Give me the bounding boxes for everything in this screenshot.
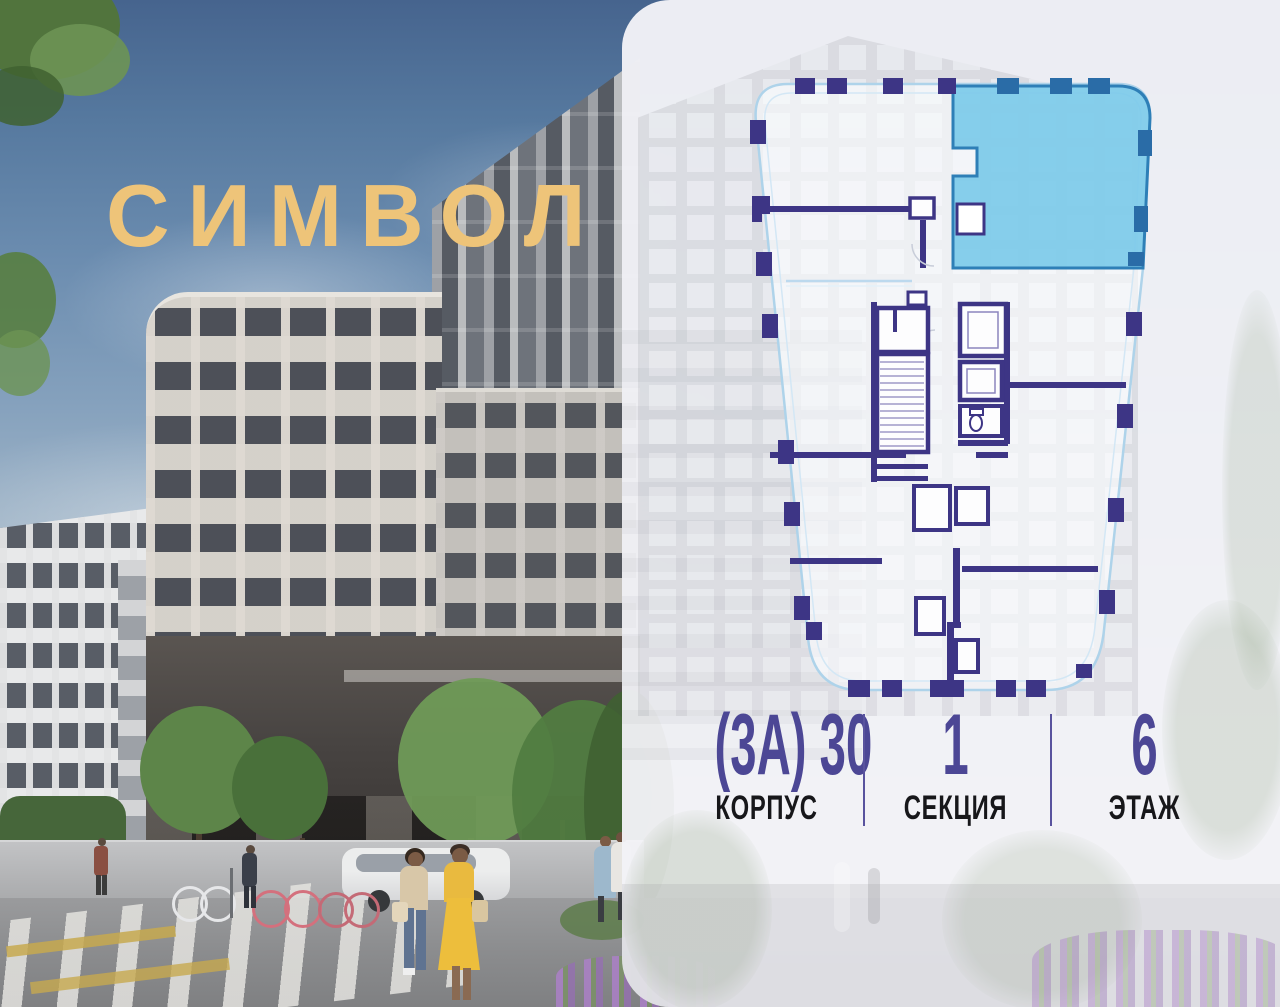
ghost-pedestrian	[834, 862, 850, 932]
bicycle-wheel	[284, 890, 322, 928]
brand-logo: СИМВОЛ	[106, 172, 603, 260]
floor-label: ЭТАЖ	[1078, 790, 1210, 827]
section-label: СЕКЦИЯ	[889, 790, 1021, 827]
toilet-icon	[970, 415, 982, 431]
floor-plan	[725, 66, 1167, 712]
section-value: 1	[904, 702, 1008, 788]
bike-rack	[230, 868, 233, 918]
section-info: 1 СЕКЦИЯ	[861, 702, 1050, 827]
apartment-shaft	[957, 204, 984, 234]
bicycle-wheel	[344, 892, 380, 928]
shaft	[956, 488, 988, 524]
floor-info: 6 ЭТАЖ	[1050, 702, 1239, 827]
highlighted-apartment[interactable]	[953, 78, 1152, 268]
info-divider	[863, 714, 865, 826]
unit-info: (3А) 30 КОРПУС 1 СЕКЦИЯ 6 ЭТАЖ	[672, 702, 1239, 827]
ghost-lavender	[1032, 930, 1280, 1007]
korpus-value: (3А) 30	[715, 702, 819, 788]
korpus-label: КОРПУС	[700, 790, 832, 827]
info-divider	[1050, 714, 1052, 826]
floorplan-card: (3А) 30 КОРПУС 1 СЕКЦИЯ 6 ЭТАЖ	[622, 0, 1280, 1007]
vestibule	[877, 308, 928, 352]
shaft	[914, 486, 950, 530]
ghost-pedestrian	[868, 868, 880, 924]
korpus-info: (3А) 30 КОРПУС	[672, 702, 861, 827]
listing-hero: СИМВОЛ	[0, 0, 1280, 1007]
shaft	[916, 598, 944, 634]
shaft	[956, 640, 978, 672]
tree	[232, 736, 328, 840]
floor-value: 6	[1093, 702, 1197, 788]
